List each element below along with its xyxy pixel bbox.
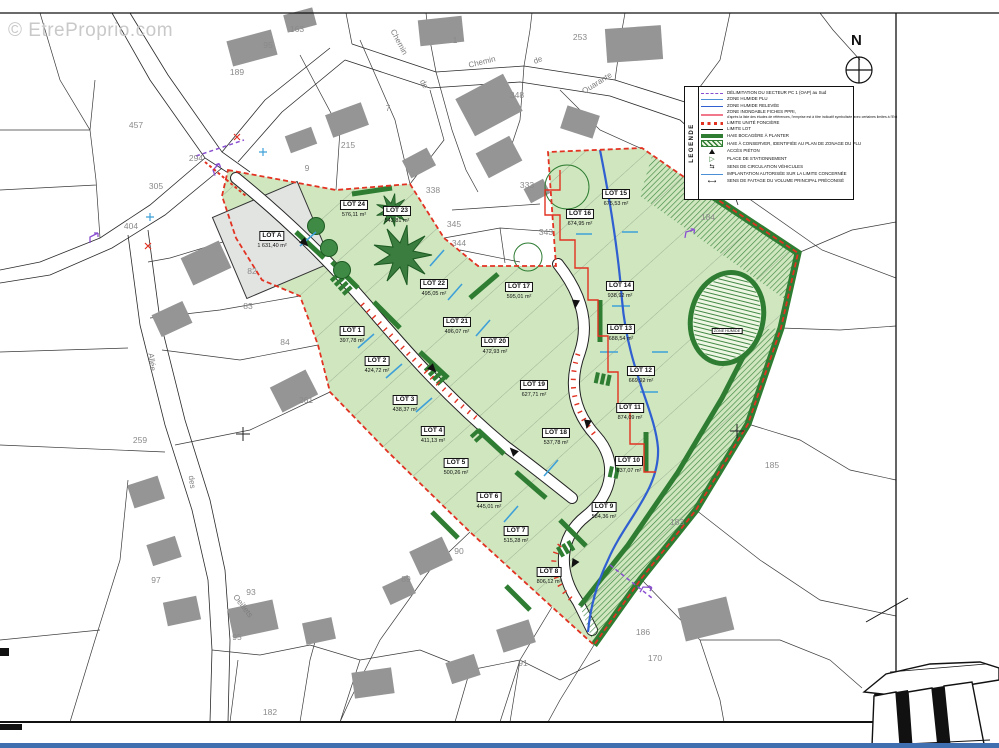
north-compass-icon	[846, 57, 872, 83]
limite-fonciere-symbol	[701, 122, 723, 125]
sector-line-symbol	[701, 93, 723, 94]
legend-row: LIMITE LOT	[701, 127, 851, 132]
sens-circulation-symbol	[709, 164, 714, 170]
legend-row: SENS DE FAITAGE DU VOLUME PRINCIPAL PRÉC…	[701, 179, 851, 185]
legend-row: SENS DE CIRCULATION VÉHICULES	[701, 164, 851, 170]
haie-a-conserver-symbol	[701, 140, 723, 147]
subdivision-plan: © EtreProprio.com N ZONE HUMIDE LEGENDE …	[0, 0, 999, 748]
limite-lot-symbol	[701, 129, 723, 130]
haie-a-planter-symbol	[701, 134, 723, 138]
legend-row: ZONE INONDABLE FICHES PPRI,d'après la li…	[701, 110, 851, 119]
acces-pieton-symbol	[709, 149, 715, 154]
north-label: N	[851, 32, 862, 49]
legend-row: ZONE HUMIDE RELEVÉE	[701, 104, 851, 109]
implantation-autorisee-symbol	[701, 174, 723, 175]
legend-box: LEGENDE DÉLIMITATION DU SECTEUR PC 1 (OA…	[684, 86, 854, 200]
sector-arrow-icon	[640, 584, 652, 597]
legend-row: DÉLIMITATION DU SECTEUR PC 1 (OAP) au Su…	[701, 91, 851, 96]
place-stationnement-symbol	[709, 156, 714, 163]
pond-label: ZONE HUMIDE	[712, 328, 743, 334]
watermark: © EtreProprio.com	[8, 20, 173, 42]
legend-row: HAIE BOCAGÈRE À PLANTER	[701, 134, 851, 139]
legend-title: LEGENDE	[685, 87, 699, 199]
zone-inondable-ppri-symbol	[701, 114, 723, 116]
legend-row: HAIE À CONSERVER, IDENTIFIÉE AU PLAN DE …	[701, 140, 851, 147]
sens-faitage-symbol	[708, 179, 717, 185]
legend-row: LIMITE UNITÉ FONCIÈRE	[701, 121, 851, 126]
dolmen-logo	[862, 662, 999, 748]
legend-row: PLACE DE STATIONNEMENT	[701, 156, 851, 163]
zone-humide-relevee-symbol	[701, 106, 723, 107]
zone-humide-plu-symbol	[701, 99, 723, 100]
footer-bar	[0, 743, 999, 748]
legend-row: IMPLANTATION AUTORISÉE SUR LA LIMITE CON…	[701, 172, 851, 177]
legend-row: ACCÈS PIÉTON	[701, 149, 851, 154]
legend-row: ZONE HUMIDE PLU	[701, 97, 851, 102]
